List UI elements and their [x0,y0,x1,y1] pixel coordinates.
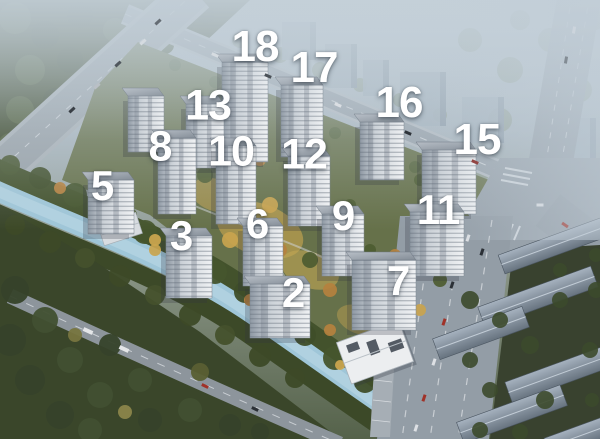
tree [222,232,238,248]
tree [324,324,336,336]
tree [191,363,209,381]
tree [128,368,152,392]
tree [39,231,61,253]
building-tower-2 [244,276,310,343]
tree [482,382,498,398]
tree [285,368,305,388]
haze-veil-right [430,0,600,240]
tree [582,342,598,358]
tree [118,405,132,419]
building-tower-5 [82,172,134,239]
tree [178,398,202,422]
tree [57,347,83,373]
tree [461,291,479,309]
tree [68,328,82,342]
tree [46,401,74,429]
tree [15,365,45,395]
tree [109,265,131,287]
building-tower-3 [160,228,212,303]
tree [552,292,568,308]
tree [215,325,235,345]
tree [75,248,95,268]
tree [472,422,488,438]
tree [462,352,478,368]
tree [492,312,508,328]
tree [149,244,161,256]
tree [219,414,241,436]
tree [521,336,539,354]
tree [87,382,113,408]
aerial-render: 18171316158101253691127 [0,0,600,439]
building-tower-7 [346,252,416,335]
tree [179,304,201,326]
aerial-scene [0,0,600,439]
tree [138,408,162,432]
building-tower-10 [210,138,256,229]
tree [585,393,599,407]
tree [99,334,121,356]
tree [249,345,271,367]
tree [323,283,337,297]
tree [32,307,58,333]
tree [553,263,567,277]
tree [536,391,554,409]
tree [302,252,318,268]
tree [1,276,29,304]
building-tower-8 [152,130,196,219]
